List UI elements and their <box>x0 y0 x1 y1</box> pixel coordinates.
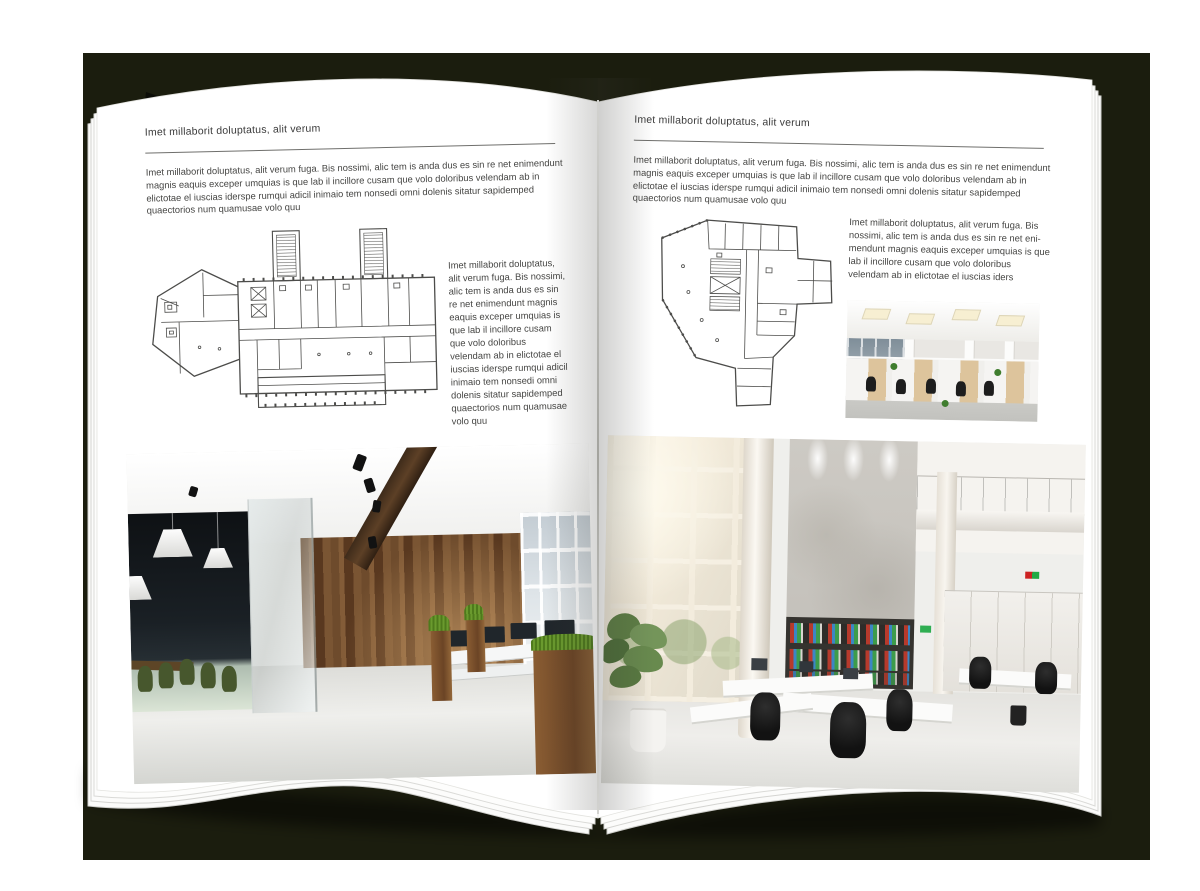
green-chair <box>179 659 195 685</box>
right-page-side-text: Imet millaborit doluptatus, alit verum f… <box>848 216 1053 285</box>
plant-pot <box>630 708 667 753</box>
green-chair <box>158 662 174 688</box>
pendant-lamp-icon <box>152 529 193 558</box>
wood-planter <box>466 616 485 672</box>
light-panel <box>995 315 1025 326</box>
office-chair <box>886 689 913 732</box>
left-page-intro: Imet millaborit doluptatus, alit verum f… <box>146 157 565 218</box>
green-chair <box>221 666 237 692</box>
office-chair <box>984 381 994 396</box>
planter-grass <box>531 633 596 651</box>
track-spotlight-icon <box>368 536 378 549</box>
wood-planter <box>533 645 596 775</box>
office-chair <box>829 702 866 759</box>
wood-planter <box>431 627 453 701</box>
right-header-rule <box>634 140 1044 149</box>
floor-plan-left <box>147 220 449 421</box>
green-chairs <box>137 657 248 720</box>
office-chair <box>956 381 966 396</box>
green-chair <box>200 662 216 688</box>
light-panel <box>862 308 892 319</box>
exit-sign-icon <box>920 626 931 633</box>
office-chair <box>969 657 992 689</box>
right-page-small-photo <box>845 300 1039 422</box>
monitor <box>510 623 536 640</box>
pendant-lamp-icon <box>126 576 151 601</box>
light-panel <box>952 309 982 320</box>
safety-sign-icon <box>1025 572 1039 579</box>
desk-plant <box>890 363 897 370</box>
lamp-cord <box>172 513 173 529</box>
right-page: Imet millaborit doluptatus, alit verum I… <box>593 55 1100 813</box>
office-chair <box>866 376 876 391</box>
left-page-header: Imet millaborit doluptatus, alit verum <box>145 123 321 139</box>
planter-grass <box>428 615 449 631</box>
planter-grass <box>464 604 483 620</box>
office-chair <box>750 692 781 741</box>
glass-partition <box>247 498 317 713</box>
binder-row <box>790 623 910 645</box>
waste-bin <box>1010 705 1026 725</box>
left-page-photo <box>126 443 596 784</box>
office-chair <box>1035 662 1058 694</box>
glass-meeting-room <box>128 511 253 712</box>
right-page-photo <box>601 435 1086 793</box>
office-chair <box>896 379 906 394</box>
magazine-mockup-scene: Imet millaborit doluptatus, alit verum I… <box>0 0 1200 891</box>
right-page-intro: Imet millaborit doluptatus, alit verum f… <box>633 154 1052 214</box>
green-chair <box>137 666 153 692</box>
office-chair <box>926 379 936 394</box>
left-page-side-text: Imet millaborit doluptatus, alit verum f… <box>448 257 570 428</box>
left-header-rule <box>145 143 555 154</box>
floor-plan-right <box>644 206 846 422</box>
monitor <box>751 658 767 670</box>
photo-ceiling <box>847 300 1040 342</box>
right-page-header: Imet millaborit doluptatus, alit verum <box>634 114 810 130</box>
monitor <box>843 668 858 679</box>
lamp-cord <box>217 512 219 548</box>
monitor <box>799 661 813 672</box>
desk-plant <box>942 400 949 407</box>
pendant-lamp-icon <box>203 548 233 569</box>
light-panel <box>905 313 935 324</box>
left-page: Imet millaborit doluptatus, alit verum I… <box>87 58 606 812</box>
